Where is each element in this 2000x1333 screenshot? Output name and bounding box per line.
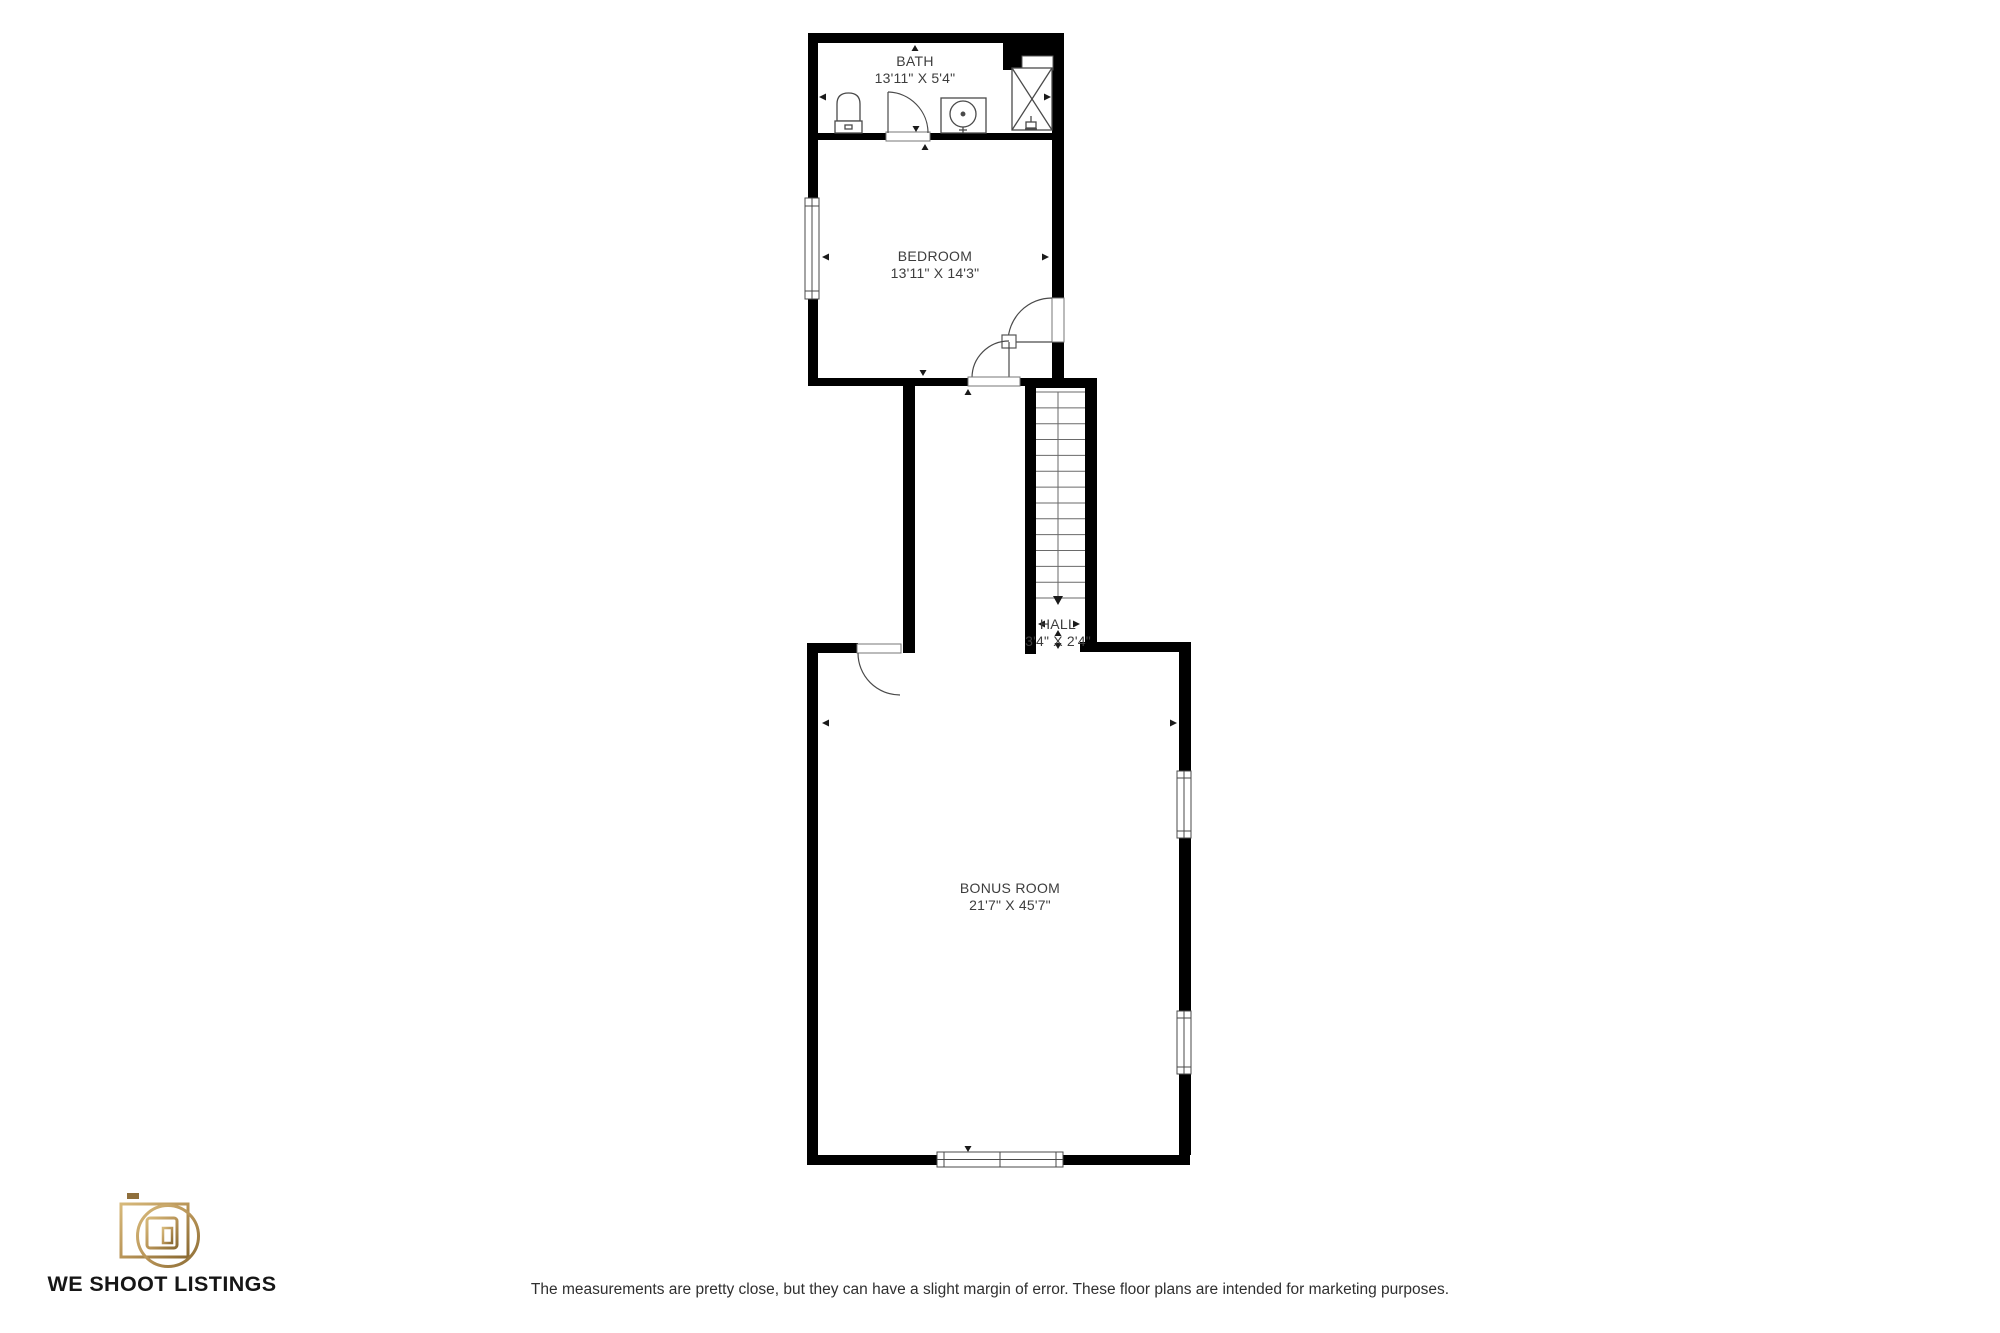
- room-dimensions: 13'11" X 14'3": [891, 265, 980, 282]
- room-label-bonus-room: BONUS ROOM 21'7" X 45'7": [960, 880, 1060, 914]
- company-name: WE SHOOT LISTINGS: [48, 1272, 277, 1297]
- room-dimensions: 3'4" X 2'4": [1025, 633, 1091, 650]
- dimension-arrows: [819, 45, 1177, 1152]
- room-name: BEDROOM: [891, 248, 980, 265]
- room-name: HALL: [1025, 616, 1091, 633]
- bonus-door: [857, 644, 901, 695]
- bedroom-doors: [968, 298, 1064, 386]
- toilet-icon: [835, 93, 862, 133]
- room-dimensions: 21'7" X 45'7": [960, 897, 1060, 914]
- room-name: BONUS ROOM: [960, 880, 1060, 897]
- room-label-bedroom: BEDROOM 13'11" X 14'3": [891, 248, 980, 282]
- camera-icon: [118, 1191, 208, 1273]
- stair-treads: [1036, 392, 1085, 598]
- room-name: BATH: [875, 53, 956, 70]
- room-label-bath: BATH 13'11" X 5'4": [875, 53, 956, 87]
- disclaimer-text: The measurements are pretty close, but t…: [531, 1281, 1449, 1299]
- room-label-hall: HALL 3'4" X 2'4": [1025, 616, 1091, 650]
- bedroom-window: [805, 198, 819, 299]
- sink-icon: [941, 98, 986, 133]
- company-logo: [118, 1191, 208, 1273]
- corridor-stair-walls: [903, 378, 1097, 654]
- stairs-down-arrow: [1053, 596, 1063, 605]
- bonus-window-right-2: [1177, 1011, 1191, 1074]
- bonus-window-right-1: [1177, 771, 1191, 838]
- bath-door: [886, 92, 930, 141]
- room-dimensions: 13'11" X 5'4": [875, 70, 956, 87]
- floor-plan-drawing: [0, 0, 2000, 1333]
- staircase: [1036, 392, 1085, 605]
- floor-plan-page: BATH 13'11" X 5'4" BEDROOM 13'11" X 14'3…: [0, 0, 2000, 1333]
- bonus-window-bottom: [937, 1152, 1063, 1167]
